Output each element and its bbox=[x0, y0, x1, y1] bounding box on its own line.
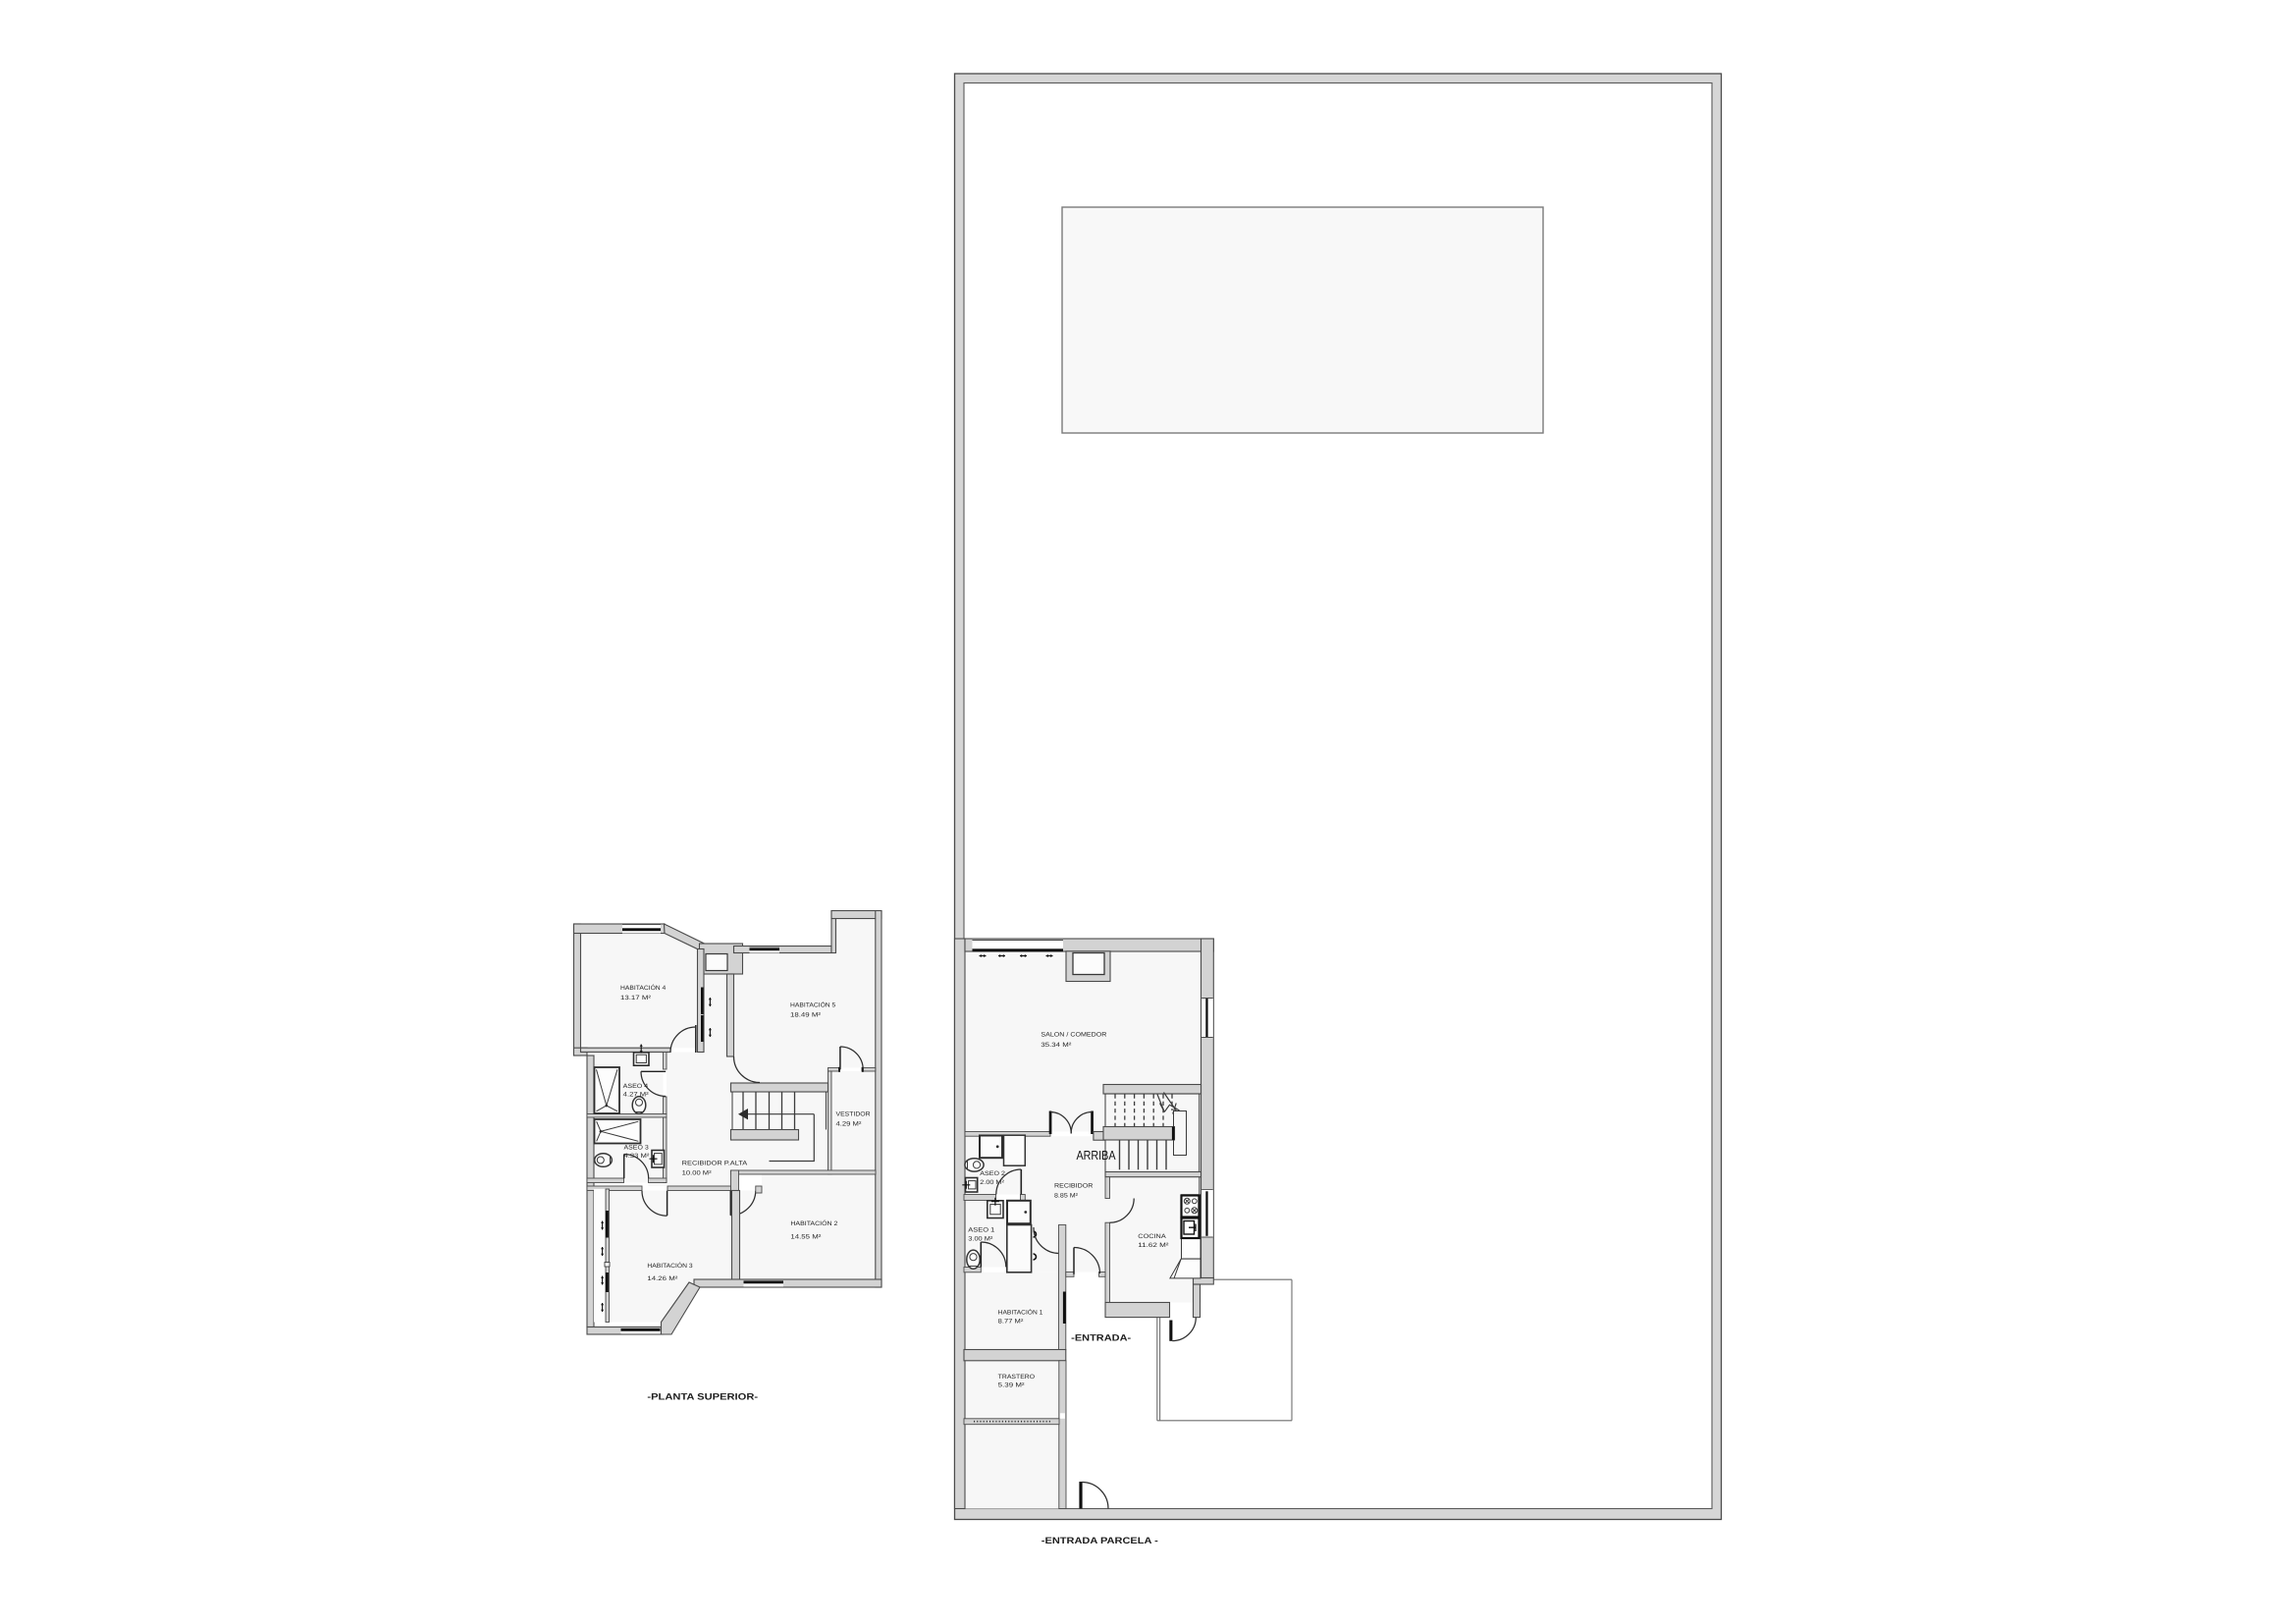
svg-text:5.39 M²: 5.39 M² bbox=[998, 1382, 1025, 1389]
svg-text:ASEO 1: ASEO 1 bbox=[968, 1227, 995, 1234]
svg-text:VESTIDOR: VESTIDOR bbox=[836, 1111, 872, 1118]
svg-text:HABITACIÓN 4: HABITACIÓN 4 bbox=[620, 984, 667, 992]
svg-text:3.00 M²: 3.00 M² bbox=[968, 1236, 992, 1243]
svg-text:2.00 M²: 2.00 M² bbox=[980, 1179, 1004, 1186]
svg-text:RECIBIDOR P.ALTA: RECIBIDOR P.ALTA bbox=[682, 1161, 748, 1167]
svg-text:HABITACIÓN 2: HABITACIÓN 2 bbox=[790, 1219, 838, 1227]
svg-text:RECIBIDOR: RECIBIDOR bbox=[1054, 1183, 1094, 1190]
svg-text:18.49 M²: 18.49 M² bbox=[790, 1012, 821, 1019]
svg-text:8.77 M²: 8.77 M² bbox=[998, 1319, 1024, 1326]
svg-text:HABITACIÓN 1: HABITACIÓN 1 bbox=[998, 1309, 1043, 1317]
svg-text:35.34 M²: 35.34 M² bbox=[1041, 1042, 1071, 1049]
svg-text:13.17 M²: 13.17 M² bbox=[620, 995, 651, 1001]
svg-text:-PLANTA SUPERIOR-: -PLANTA SUPERIOR- bbox=[647, 1392, 758, 1402]
svg-text:-ENTRADA-: -ENTRADA- bbox=[1071, 1333, 1131, 1343]
svg-text:TRASTERO: TRASTERO bbox=[998, 1374, 1035, 1380]
svg-text:14.55 M²: 14.55 M² bbox=[790, 1234, 821, 1241]
svg-text:ASEO 2: ASEO 2 bbox=[980, 1170, 1005, 1177]
svg-text:4.33 M²: 4.33 M² bbox=[624, 1153, 650, 1160]
svg-text:SALON / COMEDOR: SALON / COMEDOR bbox=[1041, 1032, 1107, 1039]
svg-text:14.26 M²: 14.26 M² bbox=[647, 1275, 677, 1282]
svg-text:HABITACIÓN 3: HABITACIÓN 3 bbox=[647, 1262, 693, 1270]
svg-text:ASEO 4: ASEO 4 bbox=[623, 1083, 649, 1090]
svg-text:8.85 M²: 8.85 M² bbox=[1054, 1193, 1078, 1200]
svg-text:4.29 M²: 4.29 M² bbox=[836, 1121, 862, 1128]
svg-text:10.00 M²: 10.00 M² bbox=[682, 1170, 712, 1177]
svg-text:-ENTRADA PARCELA -: -ENTRADA PARCELA - bbox=[1041, 1536, 1158, 1545]
svg-text:COCINA: COCINA bbox=[1138, 1233, 1166, 1240]
svg-text:4.27 M²: 4.27 M² bbox=[623, 1092, 649, 1099]
svg-text:ARRIBA: ARRIBA bbox=[1077, 1148, 1116, 1163]
svg-text:HABITACIÓN 5: HABITACIÓN 5 bbox=[790, 1001, 836, 1009]
svg-text:11.62 M²: 11.62 M² bbox=[1138, 1242, 1168, 1249]
svg-text:ASEO 3: ASEO 3 bbox=[624, 1145, 650, 1152]
